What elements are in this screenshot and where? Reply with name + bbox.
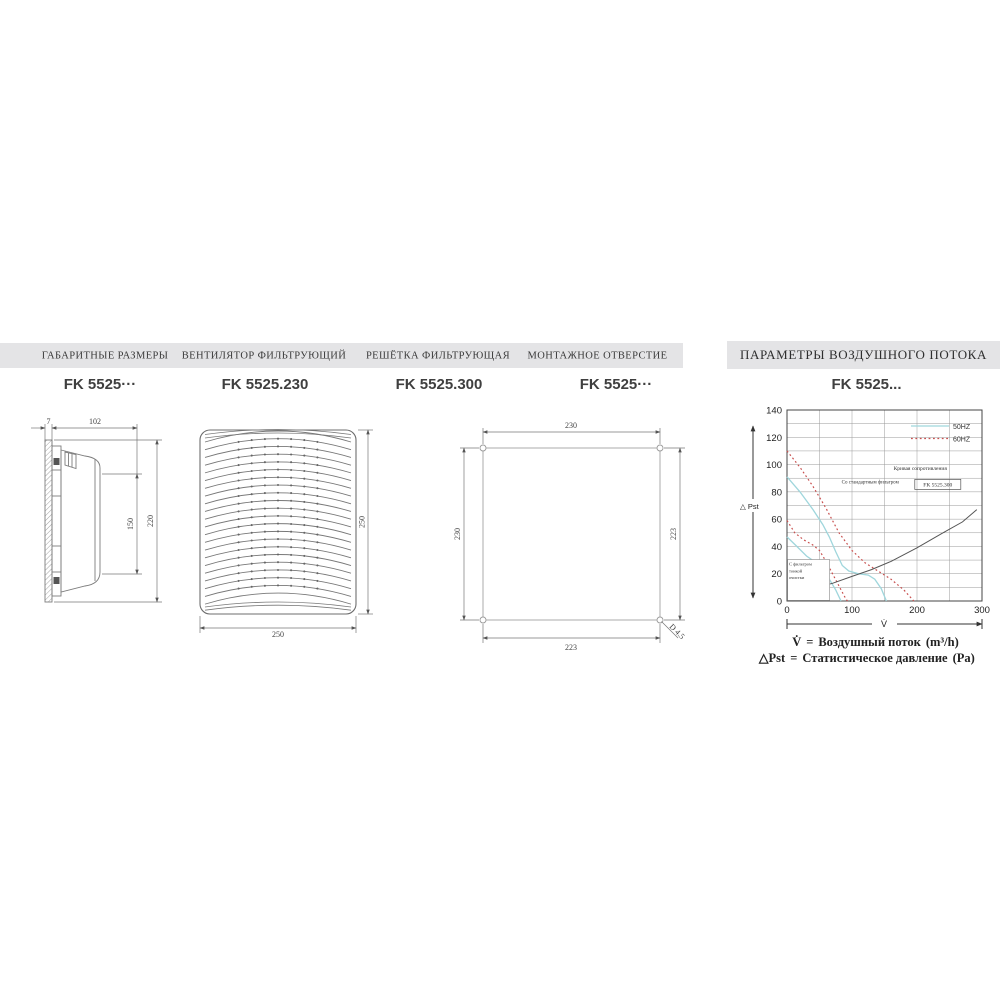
left-header-bar: ГАБАРИТНЫЕ РАЗМЕРЫ ВЕНТИЛЯТОР ФИЛЬТРУЮЩИ… bbox=[0, 343, 683, 368]
louver-dot bbox=[303, 524, 305, 526]
louver-dot bbox=[264, 531, 266, 533]
x-tick-label: 200 bbox=[909, 605, 925, 616]
louver-dot bbox=[251, 555, 253, 557]
louver-dot bbox=[303, 563, 305, 565]
louver-dot bbox=[316, 541, 318, 543]
louver-dot bbox=[303, 470, 305, 472]
louver-dot bbox=[303, 478, 305, 480]
louver-dot bbox=[251, 586, 253, 588]
louver-dot bbox=[251, 578, 253, 580]
louver-dot bbox=[264, 477, 266, 479]
louver-dot bbox=[251, 547, 253, 549]
louver-dot bbox=[316, 572, 318, 574]
louver-arc bbox=[205, 539, 351, 550]
annotation-text: Кривая сопротивления bbox=[894, 466, 948, 472]
louver-dot bbox=[264, 453, 266, 455]
louver-dot bbox=[303, 532, 305, 534]
dimension-label: 223 bbox=[565, 643, 577, 652]
series-line-4 bbox=[816, 510, 977, 588]
chart-canvas: 0204060801001201400100200300Со стандартн… bbox=[766, 406, 990, 617]
louver-dot bbox=[251, 501, 253, 503]
dimension-label: 230 bbox=[565, 421, 577, 430]
louver-dot bbox=[316, 441, 318, 443]
louver-dot bbox=[316, 557, 318, 559]
louver-dot bbox=[290, 461, 292, 463]
clip-bottom bbox=[54, 577, 60, 584]
louver-dot bbox=[251, 570, 253, 572]
louver-dot bbox=[277, 445, 279, 447]
louver-dot bbox=[264, 500, 266, 502]
louver-arc bbox=[205, 516, 351, 527]
dimension-label: 102 bbox=[89, 417, 101, 426]
fan-front-plate bbox=[52, 446, 61, 596]
louver-dot bbox=[264, 562, 266, 564]
louver-dot bbox=[303, 516, 305, 518]
louver-arc bbox=[205, 585, 351, 596]
louver-dot bbox=[277, 523, 279, 525]
louver-dot bbox=[290, 438, 292, 440]
dimension-label: 223 bbox=[669, 528, 678, 540]
model-label-chart: FK 5525... bbox=[733, 376, 1000, 393]
legend-label: 50HZ bbox=[953, 424, 971, 431]
x-tick-label: 0 bbox=[784, 605, 789, 616]
airflow-symbol: V̇ bbox=[761, 634, 801, 650]
louver-dot bbox=[290, 453, 292, 455]
catalog-page: { "header": { "left_columns": [ {"title"… bbox=[0, 0, 1000, 1000]
louver-dot bbox=[264, 577, 266, 579]
louver-dot bbox=[303, 462, 305, 464]
annotation-text: FK 5525.300 bbox=[923, 482, 952, 488]
louver-dot bbox=[316, 479, 318, 481]
louver-dot bbox=[238, 449, 240, 451]
louver-dot bbox=[238, 487, 240, 489]
louver-dot bbox=[251, 485, 253, 487]
y-axis-arrow: △ Pst bbox=[737, 426, 769, 598]
louver-dot bbox=[238, 464, 240, 466]
louver-dot bbox=[277, 561, 279, 563]
louver-dot bbox=[264, 546, 266, 548]
louver-dot bbox=[277, 530, 279, 532]
louver-dot bbox=[238, 472, 240, 474]
louver-dot bbox=[290, 484, 292, 486]
louver-dot bbox=[290, 562, 292, 564]
y-tick-label: 40 bbox=[771, 542, 782, 553]
louver-arc bbox=[205, 605, 351, 610]
louver-dot bbox=[316, 526, 318, 528]
column-title-mounting-hole: МОНТАЖНОЕ ОТВЕРСТИЕ bbox=[512, 350, 683, 361]
louver-dot bbox=[303, 501, 305, 503]
side-view-body bbox=[45, 440, 100, 602]
louver-dot bbox=[316, 518, 318, 520]
louver-dot bbox=[316, 449, 318, 451]
louver-dot bbox=[238, 518, 240, 520]
louver-arc bbox=[205, 454, 351, 465]
louver-arc bbox=[205, 493, 351, 504]
louver-dot bbox=[277, 577, 279, 579]
hole-diameter-label: D 4.5 bbox=[668, 622, 687, 641]
louver-dot bbox=[238, 534, 240, 536]
airflow-chart: 0204060801001201400100200300Со стандартн… bbox=[733, 396, 998, 658]
louver-dot bbox=[238, 580, 240, 582]
louver-arc bbox=[205, 500, 351, 511]
model-label-dimensions: FK 5525··· bbox=[20, 376, 180, 393]
louver-dot bbox=[264, 515, 266, 517]
louver-dot bbox=[264, 438, 266, 440]
louver-dot bbox=[238, 557, 240, 559]
louver-dot bbox=[290, 546, 292, 548]
louver-arc bbox=[205, 462, 351, 473]
airflow-parameters-title: ПАРАМЕТРЫ ВОЗДУШНОГО ПОТОКА bbox=[740, 347, 987, 363]
louver-dot bbox=[264, 508, 266, 510]
louver-dot bbox=[238, 564, 240, 566]
louver-dot bbox=[303, 555, 305, 557]
model-label-mounting-hole: FK 5525··· bbox=[530, 376, 702, 393]
louver-dot bbox=[316, 487, 318, 489]
y-tick-label: 140 bbox=[766, 406, 782, 417]
louver-dot bbox=[290, 508, 292, 510]
louver-dot bbox=[238, 479, 240, 481]
louver-dot bbox=[251, 532, 253, 534]
louver-dot bbox=[277, 499, 279, 501]
louver-dot bbox=[303, 493, 305, 495]
louver-dot bbox=[238, 503, 240, 505]
louver-dot bbox=[251, 462, 253, 464]
louver-dot bbox=[277, 553, 279, 555]
column-title-filter-grille: РЕШЁТКА ФИЛЬТРУЮЩАЯ bbox=[352, 350, 524, 361]
y-axis-label: △ Pst bbox=[740, 502, 760, 511]
dimension-label: 220 bbox=[146, 515, 155, 527]
louver-arc bbox=[205, 508, 351, 519]
right-header-bar: ПАРАМЕТРЫ ВОЗДУШНОГО ПОТОКА bbox=[727, 341, 1000, 369]
louver-arc bbox=[205, 485, 351, 496]
louver-dot bbox=[303, 539, 305, 541]
louver-dot bbox=[316, 510, 318, 512]
louver-dot bbox=[238, 441, 240, 443]
louver-dot bbox=[251, 509, 253, 511]
louver-dot bbox=[251, 563, 253, 565]
note-airflow: V̇ = Воздушный поток (m³/h) bbox=[720, 634, 1000, 650]
x-tick-label: 100 bbox=[844, 605, 860, 616]
dimension-label: 7 bbox=[47, 417, 51, 426]
louver-dot bbox=[290, 554, 292, 556]
louver-arc bbox=[205, 477, 351, 488]
fan-housing bbox=[61, 450, 100, 592]
x-axis-label: V̇ bbox=[881, 619, 887, 629]
louver-arc bbox=[205, 578, 351, 589]
louver-dot bbox=[290, 477, 292, 479]
louver-arc bbox=[205, 593, 351, 604]
louver-dot bbox=[277, 584, 279, 586]
cutout-outline bbox=[483, 448, 660, 620]
louver-dot bbox=[264, 523, 266, 525]
louver-dot bbox=[303, 586, 305, 588]
louver-dot bbox=[264, 461, 266, 463]
louver-dot bbox=[251, 447, 253, 449]
louver-dot bbox=[277, 569, 279, 571]
louver-dot bbox=[316, 549, 318, 551]
louver-dot bbox=[264, 469, 266, 471]
legend-label: 60HZ bbox=[953, 436, 971, 443]
louver-dot bbox=[277, 453, 279, 455]
louver-dot bbox=[238, 572, 240, 574]
louver-dot bbox=[277, 461, 279, 463]
louver-dot bbox=[316, 464, 318, 466]
louver-dot bbox=[303, 455, 305, 457]
louver-dot bbox=[264, 484, 266, 486]
louver-dot bbox=[303, 570, 305, 572]
louver-dot bbox=[316, 564, 318, 566]
dimension-label: 250 bbox=[272, 630, 284, 639]
louver-slats bbox=[205, 430, 351, 611]
side-view-drawing: 7 102 150 220 bbox=[25, 412, 175, 612]
louver-dot bbox=[264, 554, 266, 556]
chart-notes: V̇ = Воздушный поток (m³/h) △Pst = Стати… bbox=[720, 634, 1000, 666]
louver-dot bbox=[238, 456, 240, 458]
louver-dot bbox=[303, 578, 305, 580]
louver-dot bbox=[264, 585, 266, 587]
louver-dot bbox=[251, 493, 253, 495]
column-title-filter-fan: ВЕНТИЛЯТОР ФИЛЬТРУЮЩИЙ bbox=[178, 350, 350, 361]
louver-dot bbox=[251, 539, 253, 541]
model-label-filter-fan: FK 5525.230 bbox=[180, 376, 350, 393]
louver-dot bbox=[251, 516, 253, 518]
y-tick-label: 80 bbox=[771, 487, 782, 498]
louver-dot bbox=[264, 446, 266, 448]
louver-dot bbox=[277, 515, 279, 517]
clip-top bbox=[54, 458, 60, 465]
louver-dot bbox=[251, 470, 253, 472]
model-label-filter-grille: FK 5525.300 bbox=[353, 376, 525, 393]
louver-dot bbox=[277, 438, 279, 440]
louver-dot bbox=[277, 538, 279, 540]
louver-dot bbox=[238, 510, 240, 512]
louver-dot bbox=[277, 492, 279, 494]
y-tick-label: 0 bbox=[777, 597, 782, 608]
louver-dot bbox=[290, 523, 292, 525]
louver-arc bbox=[205, 446, 351, 457]
louver-dot bbox=[277, 507, 279, 509]
louver-dot bbox=[277, 546, 279, 548]
louver-dot bbox=[290, 577, 292, 579]
pressure-symbol: △Pst bbox=[745, 650, 785, 666]
wall-panel-hatched bbox=[45, 440, 52, 602]
louver-dot bbox=[290, 531, 292, 533]
louver-dot bbox=[290, 585, 292, 587]
y-tick-label: 20 bbox=[771, 569, 782, 580]
louver-dot bbox=[264, 492, 266, 494]
louver-dot bbox=[277, 476, 279, 478]
note-static-pressure: △Pst = Статистическое давление (Pa) bbox=[720, 650, 1000, 666]
annotation-text: Со стандартным фильтром bbox=[842, 481, 900, 486]
louver-arc bbox=[205, 433, 351, 438]
dimension-label: 250 bbox=[358, 516, 367, 528]
dimension-label: 150 bbox=[126, 518, 135, 530]
louver-arc bbox=[205, 524, 351, 535]
louver-arc bbox=[205, 555, 351, 566]
louver-dot bbox=[290, 538, 292, 540]
x-tick-label: 300 bbox=[974, 605, 990, 616]
louver-dot bbox=[290, 500, 292, 502]
louver-dot bbox=[316, 588, 318, 590]
louver-dot bbox=[251, 439, 253, 441]
louver-dot bbox=[290, 469, 292, 471]
louver-dot bbox=[251, 455, 253, 457]
mounting-holes bbox=[480, 445, 663, 623]
louver-dot bbox=[316, 580, 318, 582]
louver-dot bbox=[251, 524, 253, 526]
louver-dot bbox=[303, 439, 305, 441]
louver-dot bbox=[277, 469, 279, 471]
louver-dot bbox=[316, 472, 318, 474]
louver-dot bbox=[251, 478, 253, 480]
louver-arc bbox=[205, 531, 351, 542]
louver-arc bbox=[205, 547, 351, 558]
cutout-dimensions bbox=[460, 428, 685, 643]
louver-dot bbox=[303, 447, 305, 449]
y-tick-label: 100 bbox=[766, 460, 782, 471]
louver-dot bbox=[238, 541, 240, 543]
louver-dot bbox=[316, 456, 318, 458]
louver-arc bbox=[205, 562, 351, 573]
louver-dot bbox=[316, 495, 318, 497]
louver-dot bbox=[290, 492, 292, 494]
louver-arc bbox=[205, 570, 351, 581]
louver-dot bbox=[277, 484, 279, 486]
column-title-dimensions: ГАБАРИТНЫЕ РАЗМЕРЫ bbox=[20, 350, 190, 361]
y-tick-label: 60 bbox=[771, 515, 782, 526]
louver-dot bbox=[264, 569, 266, 571]
louver-dot bbox=[303, 485, 305, 487]
louver-dot bbox=[303, 547, 305, 549]
louver-dot bbox=[264, 538, 266, 540]
louver-dot bbox=[303, 509, 305, 511]
louver-dot bbox=[238, 526, 240, 528]
mounting-cutout-drawing: 230 230 223 223 D 4.5 bbox=[448, 418, 698, 658]
x-axis-arrow: V̇ bbox=[787, 616, 982, 630]
louver-arc bbox=[205, 602, 351, 607]
louver-dot bbox=[238, 549, 240, 551]
louver-dot bbox=[316, 503, 318, 505]
louver-dot bbox=[290, 446, 292, 448]
dimension-label: 230 bbox=[453, 528, 462, 540]
louver-dot bbox=[290, 569, 292, 571]
louver-arc bbox=[205, 470, 351, 481]
latch-detail bbox=[65, 452, 76, 469]
fan-grille-drawing: 250 250 bbox=[192, 424, 382, 640]
louver-arc bbox=[205, 439, 351, 450]
louver-dot bbox=[290, 515, 292, 517]
louver-dot bbox=[316, 534, 318, 536]
louver-dot bbox=[238, 588, 240, 590]
louver-dot bbox=[238, 495, 240, 497]
y-tick-label: 120 bbox=[766, 433, 782, 444]
